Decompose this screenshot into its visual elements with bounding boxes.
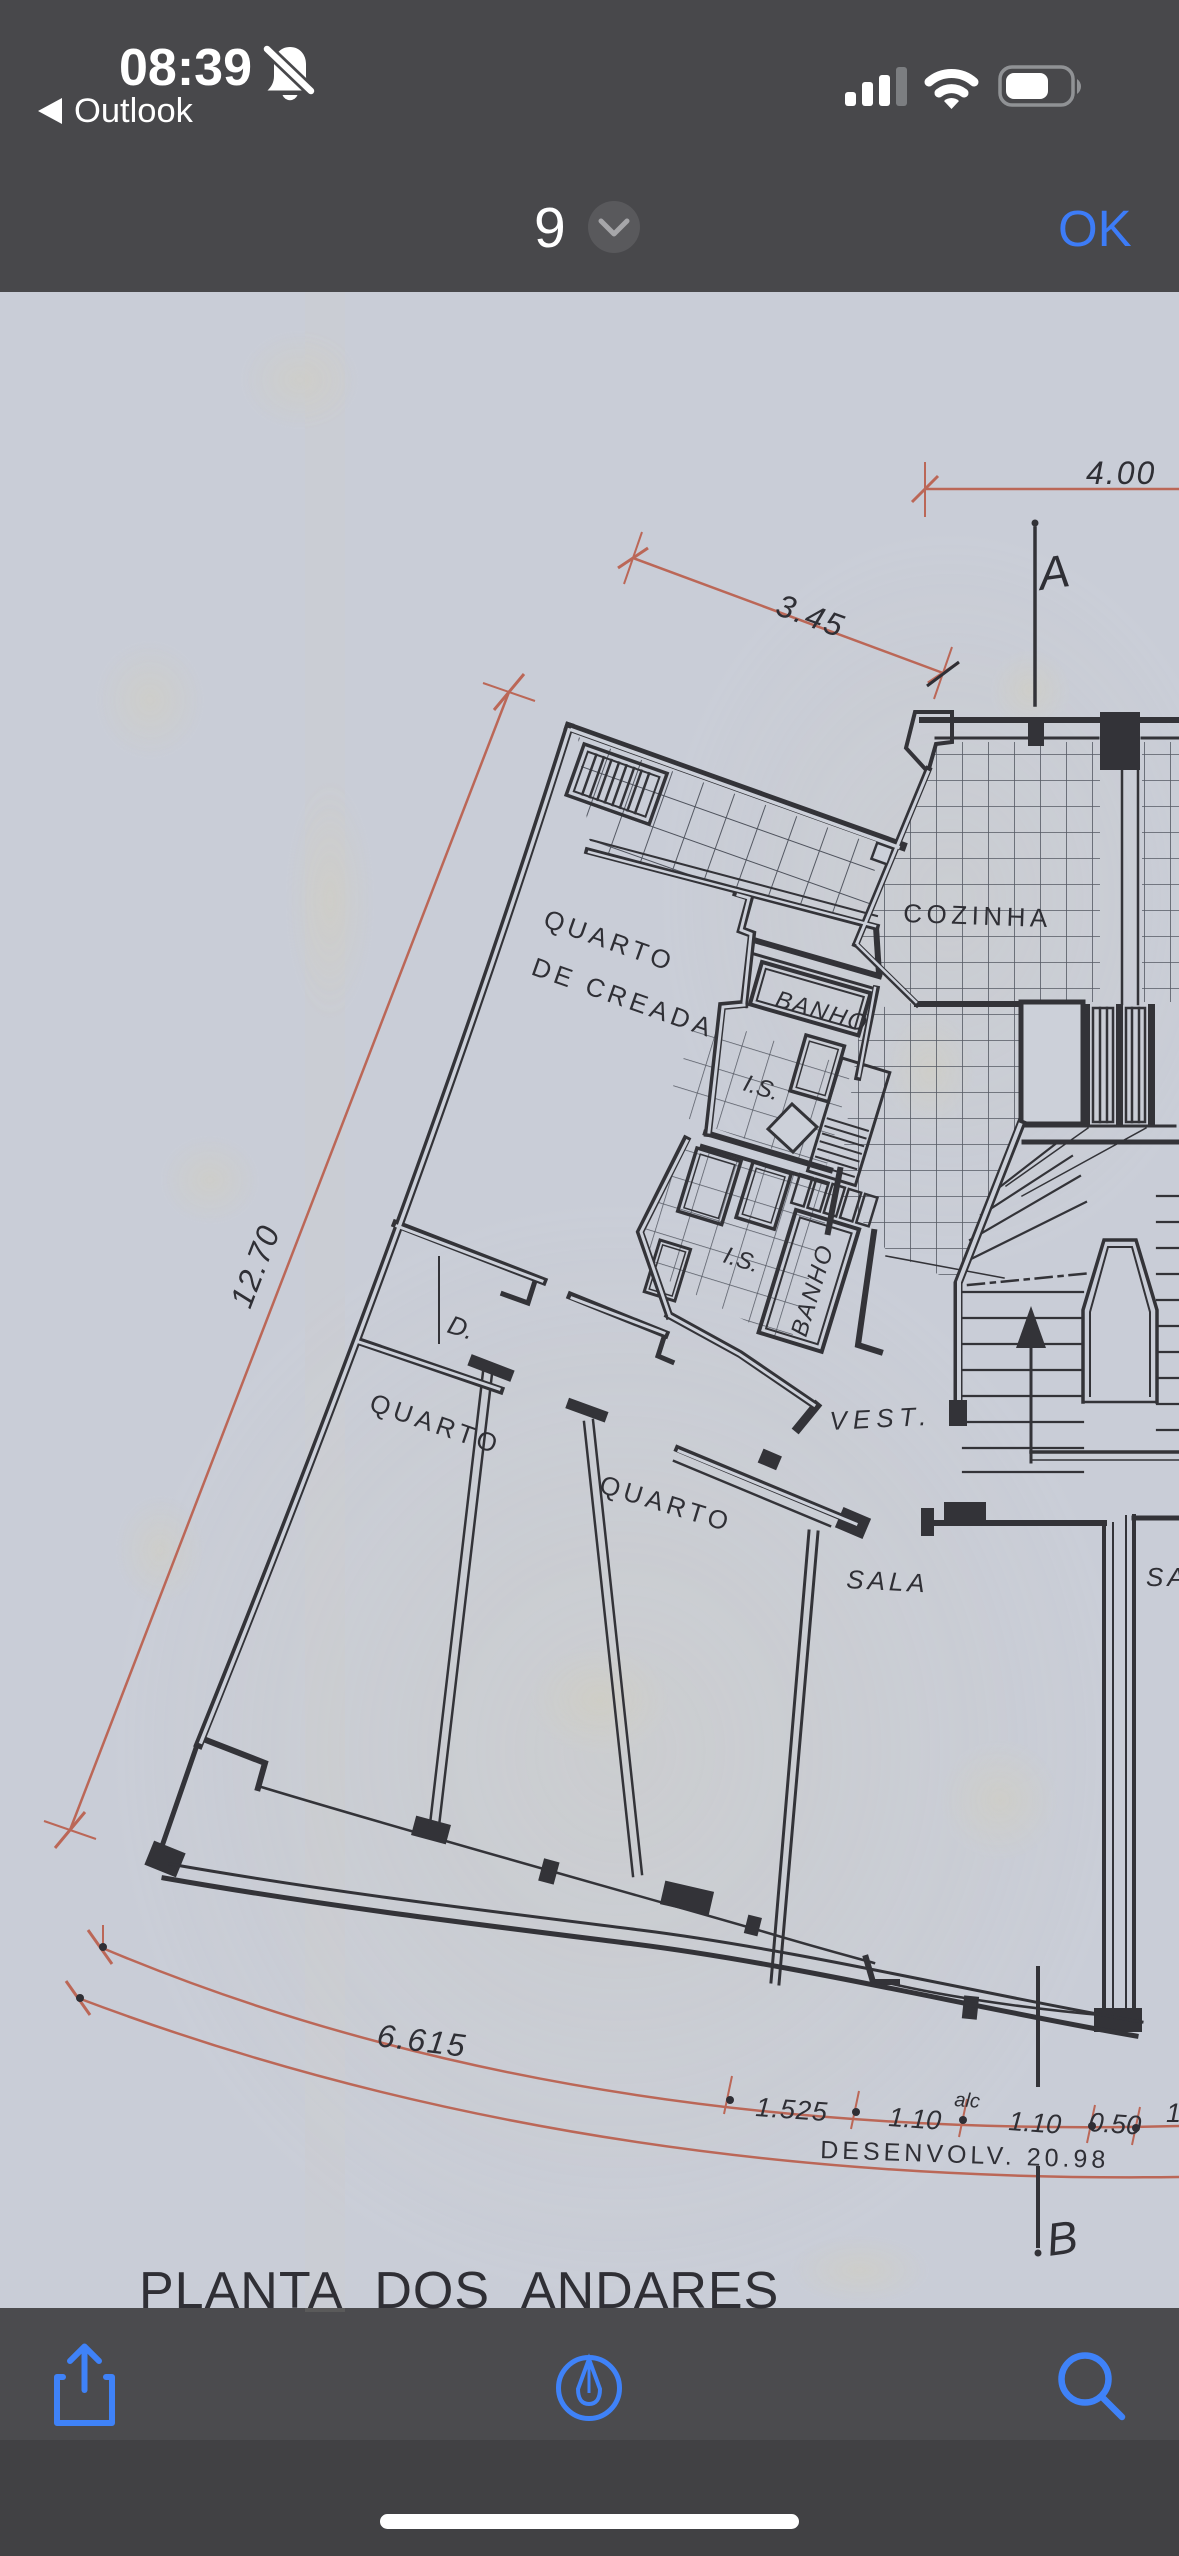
svg-text:12.70: 12.70	[223, 1220, 287, 1312]
svg-text:0.50: 0.50	[1088, 2107, 1143, 2141]
svg-text:VEST.: VEST.	[829, 1401, 933, 1436]
svg-text:alc: alc	[954, 2089, 981, 2113]
svg-text:PLANTA DOS ANDARES: PLANTA DOS ANDARES	[139, 2262, 779, 2320]
svg-text:1.525: 1.525	[755, 2092, 829, 2127]
svg-text:1: 1	[1166, 2098, 1179, 2128]
svg-text:SA: SA	[1146, 1562, 1179, 1592]
svg-text:1.10: 1.10	[888, 2102, 943, 2136]
svg-text:1.10: 1.10	[1008, 2106, 1063, 2140]
svg-text:B: B	[1043, 2210, 1081, 2266]
svg-text:SALA: SALA	[846, 1564, 930, 1598]
svg-text:4.00: 4.00	[1086, 455, 1156, 491]
svg-text:COZINHA: COZINHA	[903, 898, 1052, 933]
